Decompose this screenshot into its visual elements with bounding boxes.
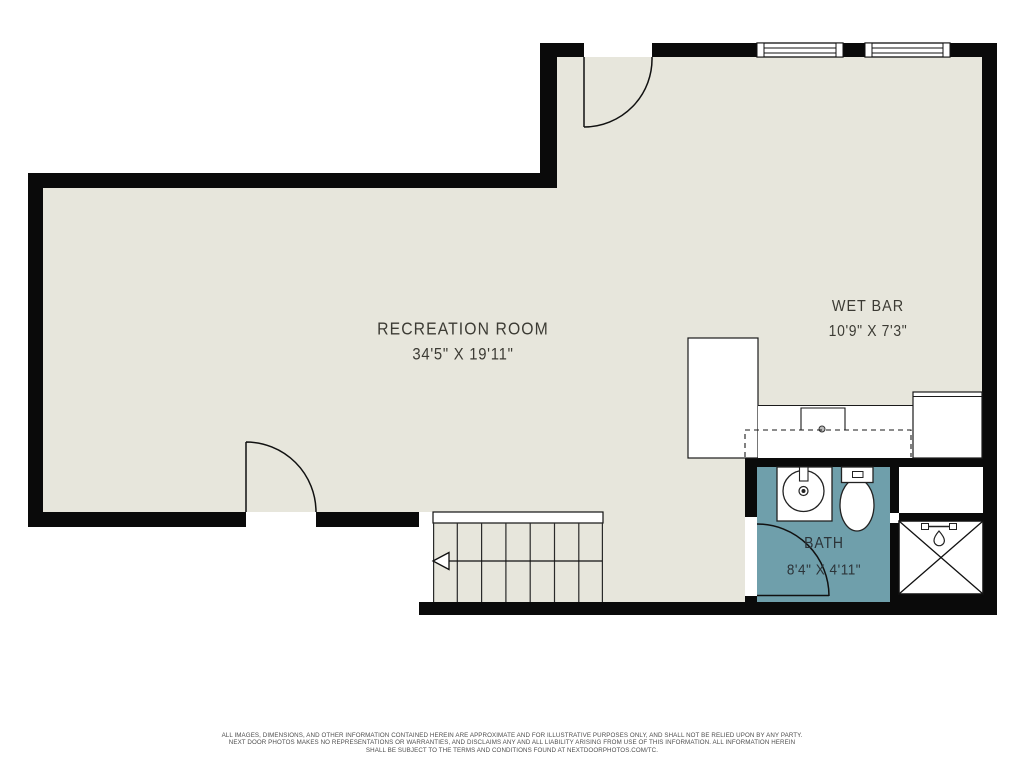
toilet-bowl: [840, 479, 874, 531]
disclaimer-line: NEXT DOOR PHOTOS MAKES NO REPRESENTATION…: [0, 739, 1024, 746]
shower-bar-end: [950, 524, 957, 530]
floor-plan-drawing: [0, 0, 1024, 768]
wall-left: [28, 173, 43, 527]
window-end-cap: [943, 43, 950, 57]
disclaimer-text: ALL IMAGES, DIMENSIONS, AND OTHER INFORM…: [0, 732, 1024, 754]
wet-bar-cabinet: [913, 392, 982, 458]
wall-bath-right: [890, 462, 899, 602]
bath-label: BATH: [804, 535, 844, 553]
window-end-cap: [836, 43, 843, 57]
wet-bar-label: WET BAR: [832, 298, 904, 316]
window-frame: [757, 43, 843, 57]
recreation-room-dimensions: 34'5" X 19'11": [412, 346, 513, 365]
window-1: [757, 43, 843, 57]
floor-plan-canvas: RECREATION ROOM 34'5" X 19'11" WET BAR 1…: [0, 0, 1024, 768]
wall-right: [982, 43, 997, 615]
wall-bath-top: [745, 458, 997, 467]
window-2: [865, 43, 950, 57]
shower-bar-end: [922, 524, 929, 530]
floor-stair-zone: [433, 512, 557, 602]
window-frame: [865, 43, 950, 57]
closet-area: [899, 467, 983, 513]
disclaimer-line: ALL IMAGES, DIMENSIONS, AND OTHER INFORM…: [0, 732, 1024, 739]
toilet-flush-button: [853, 472, 864, 478]
bath-door-opening: [745, 517, 757, 596]
bath-dimensions: 8'4" X 4'11": [787, 562, 861, 579]
top-door-opening: [584, 43, 652, 57]
shower: [899, 521, 983, 594]
wet-bar-counter-vertical: [688, 338, 758, 458]
wall-bottom-left: [28, 512, 419, 527]
recreation-room-label: RECREATION ROOM: [377, 319, 549, 340]
bath-fixtures: [777, 467, 874, 531]
wet-bar-faucet-icon: [819, 426, 825, 432]
stair-landing-strip: [433, 512, 603, 523]
vanity-drain-dot: [802, 489, 806, 493]
vanity-faucet-icon: [800, 467, 809, 481]
window-end-cap: [865, 43, 872, 57]
wet-bar-dimensions: 10'9" X 7'3": [829, 323, 908, 341]
wall-left-section-top: [28, 173, 557, 188]
window-end-cap: [757, 43, 764, 57]
wall-notch: [890, 513, 899, 523]
recreation-door-opening: [246, 512, 316, 527]
wall-upper-left-connector: [540, 43, 557, 188]
disclaimer-line: SHALL BE SUBJECT TO THE TERMS AND CONDIT…: [0, 747, 1024, 754]
